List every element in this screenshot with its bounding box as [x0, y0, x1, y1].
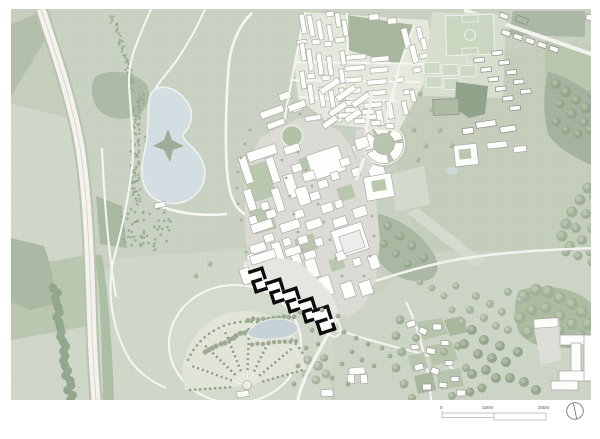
svg-text:100m: 100m [482, 405, 494, 410]
svg-text:200m: 200m [538, 405, 550, 410]
svg-text:0: 0 [440, 405, 443, 410]
